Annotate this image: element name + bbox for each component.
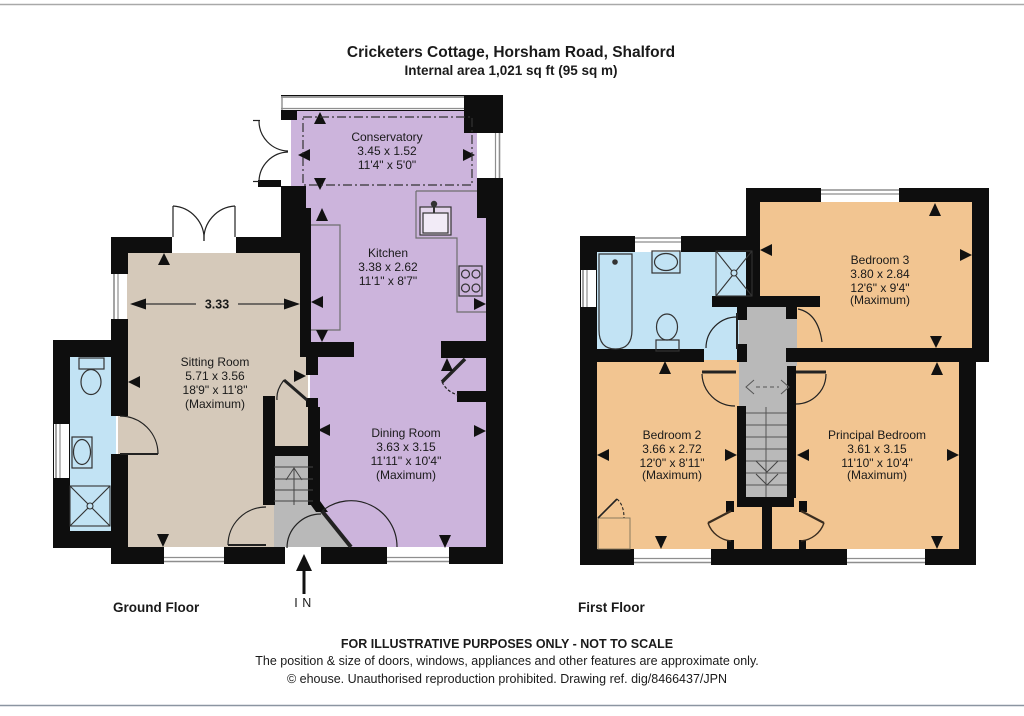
svg-text:(Maximum): (Maximum) [185, 397, 245, 411]
svg-text:Principal Bedroom: Principal Bedroom [828, 428, 926, 442]
svg-text:Bedroom 3: Bedroom 3 [851, 253, 910, 267]
svg-text:(Maximum): (Maximum) [847, 468, 907, 482]
svg-text:The position & size of doors,: The position & size of doors, windows, a… [255, 654, 759, 668]
svg-text:3.45 x 1.52: 3.45 x 1.52 [357, 144, 417, 158]
svg-text:Internal area 1,021 sq ft (95: Internal area 1,021 sq ft (95 sq m) [404, 63, 617, 78]
svg-text:3.63 x 3.15: 3.63 x 3.15 [376, 440, 436, 454]
svg-text:Sitting Room: Sitting Room [181, 355, 250, 369]
svg-text:11'11" x 10'4": 11'11" x 10'4" [371, 454, 442, 468]
svg-text:Conservatory: Conservatory [351, 130, 422, 144]
svg-text:First Floor: First Floor [578, 600, 645, 615]
svg-text:3.61 x 3.15: 3.61 x 3.15 [847, 442, 907, 456]
svg-text:(Maximum): (Maximum) [642, 468, 702, 482]
svg-text:3.38 x 2.62: 3.38 x 2.62 [358, 260, 418, 274]
svg-text:11'1" x 8'7": 11'1" x 8'7" [359, 274, 417, 288]
svg-text:(Maximum): (Maximum) [376, 468, 436, 482]
svg-text:3.66 x 2.72: 3.66 x 2.72 [642, 442, 702, 456]
svg-text:Dining Room: Dining Room [371, 426, 440, 440]
svg-text:Cricketers Cottage, Horsham Ro: Cricketers Cottage, Horsham Road, Shalfo… [347, 44, 675, 61]
svg-text:3.33: 3.33 [205, 298, 229, 312]
svg-text:Bedroom 2: Bedroom 2 [643, 428, 702, 442]
svg-text:FOR ILLUSTRATIVE PURPOSES ONLY: FOR ILLUSTRATIVE PURPOSES ONLY - NOT TO … [341, 637, 673, 651]
svg-text:(Maximum): (Maximum) [850, 293, 910, 307]
svg-text:© ehouse. Unauthorised reprodu: © ehouse. Unauthorised reproduction proh… [287, 672, 727, 686]
svg-text:Ground Floor: Ground Floor [113, 600, 200, 615]
svg-text:11'4" x 5'0": 11'4" x 5'0" [358, 158, 416, 172]
svg-text:18'9" x 11'8": 18'9" x 11'8" [183, 383, 248, 397]
svg-text:5.71 x 3.56: 5.71 x 3.56 [185, 369, 245, 383]
svg-text:3.80 x 2.84: 3.80 x 2.84 [850, 267, 910, 281]
svg-text:IN: IN [294, 596, 316, 610]
svg-text:Kitchen: Kitchen [368, 246, 408, 260]
